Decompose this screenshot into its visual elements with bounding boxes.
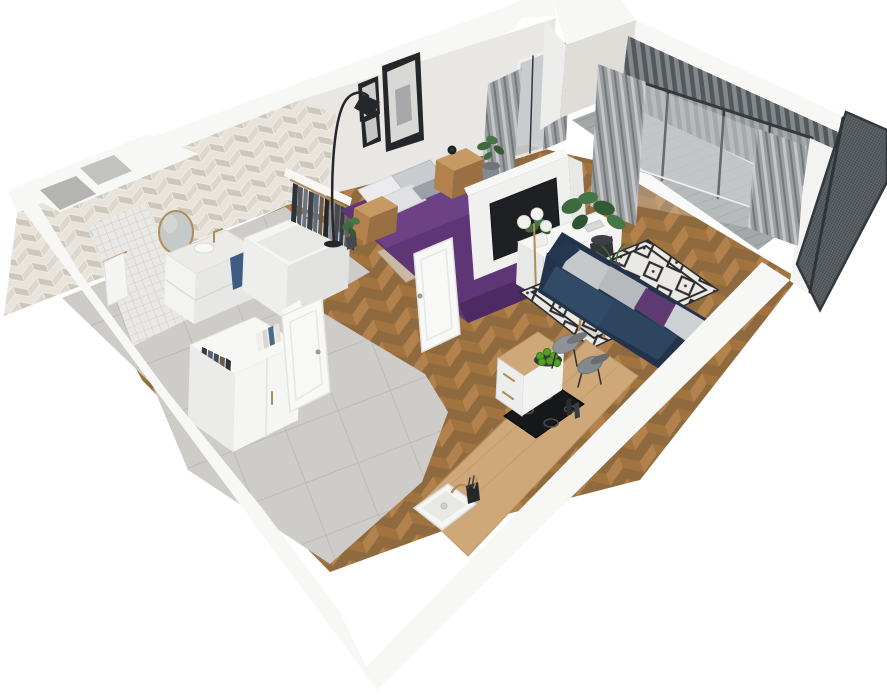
globe-lamp-bulb-2 xyxy=(531,208,543,220)
apartment-floorplan-render xyxy=(0,0,887,700)
monstera-pot-top xyxy=(591,235,613,245)
alarm-clock-face xyxy=(450,148,455,153)
door-bedroom-handle xyxy=(418,294,423,299)
pepper-grinder-2 xyxy=(574,402,580,419)
apple-4 xyxy=(538,358,545,365)
entry-closet-front-seam xyxy=(266,359,267,436)
globe-lamp-bulb-3 xyxy=(541,221,552,232)
art-frame-large-print xyxy=(395,84,412,126)
pepper-grinder-1 xyxy=(566,398,572,416)
scene-root xyxy=(4,0,887,690)
door-bathroom-handle xyxy=(316,350,321,355)
kitchen-sink-drain xyxy=(441,503,447,509)
globe-lamp-bulb-1 xyxy=(518,216,531,229)
apple-2 xyxy=(543,348,550,355)
floorplan-canvas xyxy=(0,0,887,700)
vanity-basin xyxy=(194,243,214,253)
towel-white xyxy=(104,253,128,306)
floor-lamp-base xyxy=(324,241,342,248)
plant-window-pot-top xyxy=(482,162,500,170)
bathroom-mirror-highlight xyxy=(163,215,177,233)
